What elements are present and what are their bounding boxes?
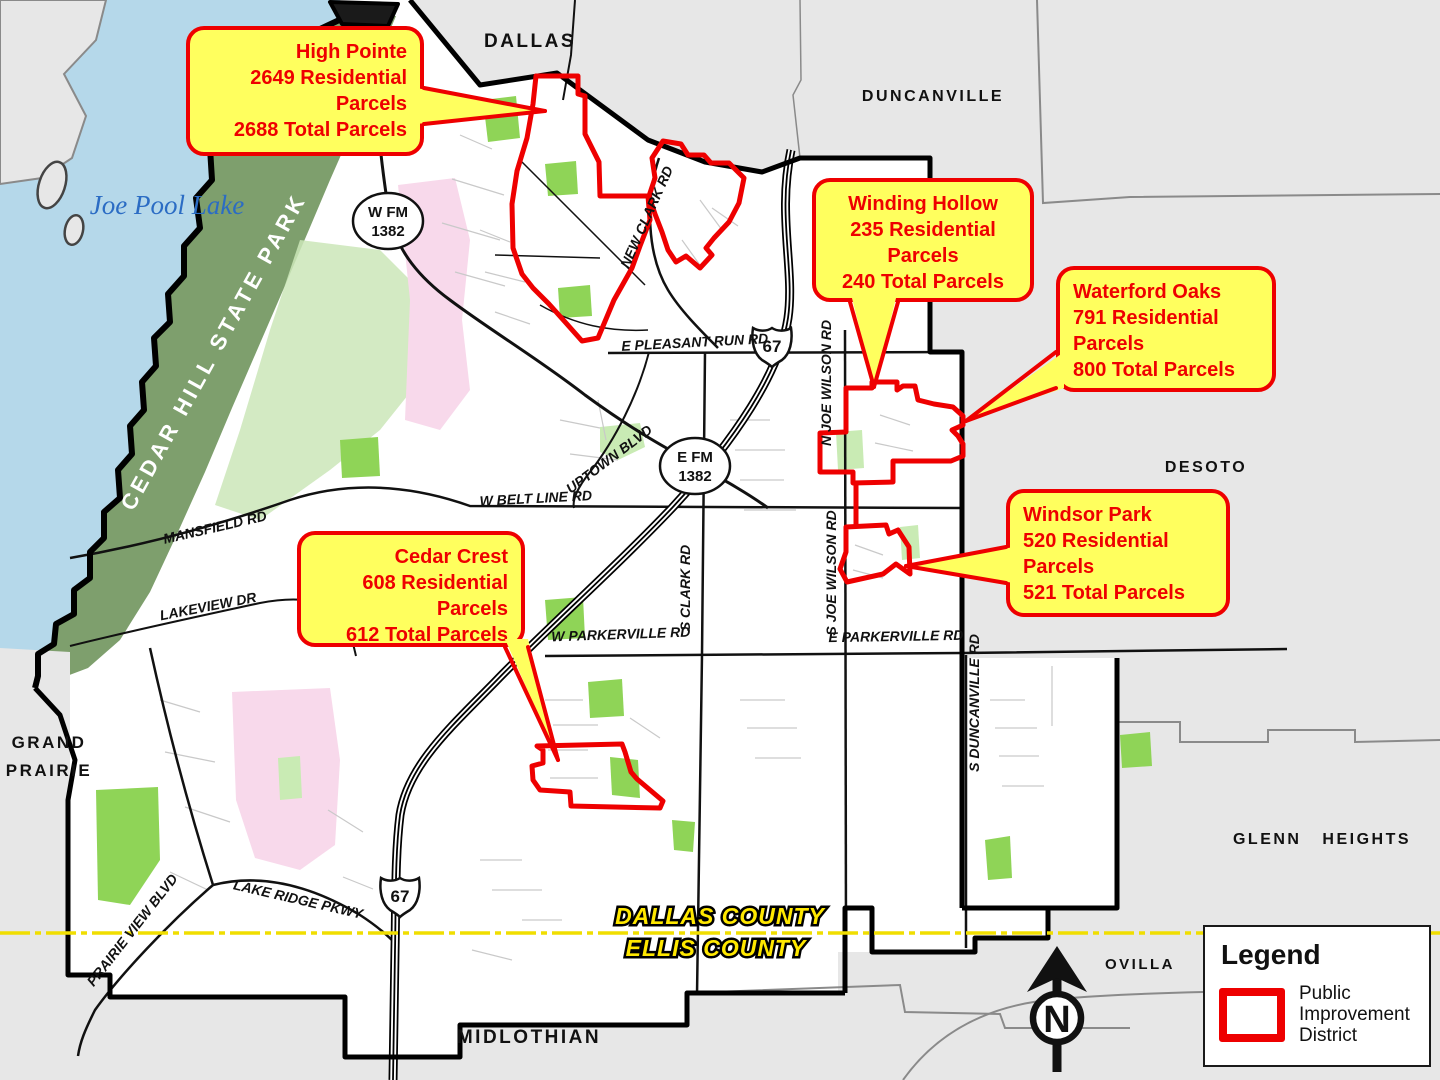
- residential-parcels: 608 Residential Parcels: [314, 570, 508, 622]
- wfm1382-label-bottom: 1382: [371, 223, 404, 240]
- road-label-n-joe-wilson: N JOE WILSON RD: [818, 320, 834, 446]
- road-label-e-parkerville: E PARKERVILLE RD: [828, 627, 963, 645]
- efm1382-label-top: E FM: [677, 449, 713, 466]
- wfm1382-shield: [353, 193, 423, 249]
- total-parcels: 521 Total Parcels: [1023, 580, 1213, 606]
- callout-winding-hollow: Winding Hollow 235 Residential Parcels 2…: [812, 178, 1034, 302]
- city-label-dallas: DALLAS: [484, 31, 576, 52]
- callout-title: Windsor Park: [1023, 502, 1213, 528]
- road-label-e-pleasant-run: E PLEASANT RUN RD: [621, 330, 769, 354]
- total-parcels: 2688 Total Parcels: [203, 117, 407, 143]
- county-label-dallas: DALLAS COUNTY: [615, 903, 826, 929]
- district-cedar-crest: [532, 744, 663, 808]
- legend-row: Public Improvement District: [1219, 983, 1429, 1046]
- legend-panel: Legend Public Improvement District: [1203, 925, 1431, 1067]
- road-label-lake-ridge: LAKE RIDGE PKWY: [232, 876, 366, 922]
- callout-stats: 520 Residential Parcels 521 Total Parcel…: [1023, 528, 1213, 606]
- callout-windsor-park: Windsor Park 520 Residential Parcels 521…: [1006, 489, 1230, 617]
- road-label-lakeview: LAKEVIEW DR: [158, 589, 258, 624]
- road-label-s-duncanville: S DUNCANVILLE RD: [966, 634, 982, 772]
- total-parcels: 612 Total Parcels: [314, 622, 508, 648]
- callout-title: Cedar Crest: [314, 544, 508, 570]
- efm1382-shield: [660, 438, 730, 494]
- us67-label: 67: [391, 887, 410, 906]
- callout-stats: 608 Residential Parcels 612 Total Parcel…: [314, 570, 508, 648]
- callout-stats: 235 Residential Parcels 240 Total Parcel…: [829, 217, 1017, 295]
- callout-stats: 791 Residential Parcels 800 Total Parcel…: [1073, 305, 1259, 383]
- total-parcels: 240 Total Parcels: [829, 269, 1017, 295]
- road-label-s-clark: S CLARK RD: [677, 545, 693, 631]
- residential-parcels: 520 Residential Parcels: [1023, 528, 1213, 580]
- road-label-s-joe-wilson: S JOE WILSON RD: [823, 510, 839, 635]
- county-label-ellis: ELLIS COUNTY: [626, 935, 808, 961]
- joe-pool-lake-label: Joe Pool Lake: [90, 190, 244, 220]
- wfm1382-label-top: W FM: [368, 204, 408, 221]
- pid-map-page: { "callouts": { "high_pointe": {"title":…: [0, 0, 1440, 1080]
- city-label-duncanville: DUNCANVILLE: [862, 88, 1004, 105]
- callout-cedar-crest: Cedar Crest 608 Residential Parcels 612 …: [297, 531, 525, 647]
- total-parcels: 800 Total Parcels: [1073, 357, 1259, 383]
- callout-title: High Pointe: [203, 39, 407, 65]
- callout-title: Winding Hollow: [829, 191, 1017, 217]
- city-label-ovilla: OVILLA: [1105, 956, 1175, 973]
- efm1382-label-bottom: 1382: [678, 468, 711, 485]
- city-label-midlothian: MIDLOTHIAN: [457, 1027, 601, 1048]
- city-label-grand-prairie-1: GRAND: [12, 733, 87, 752]
- callout-waterford-oaks: Waterford Oaks 791 Residential Parcels 8…: [1056, 266, 1276, 392]
- legend-title: Legend: [1221, 939, 1429, 971]
- road-label-new-clark: NEW CLARK RD: [617, 164, 676, 271]
- city-label-desoto: DESOTO: [1165, 459, 1247, 476]
- callout-high-pointe: High Pointe 2649 Residential Parcels 268…: [186, 26, 424, 156]
- north-arrow-n: N: [1043, 999, 1070, 1041]
- residential-parcels: 791 Residential Parcels: [1073, 305, 1259, 357]
- residential-parcels: 235 Residential Parcels: [829, 217, 1017, 269]
- callout-stats: 2649 Residential Parcels 2688 Total Parc…: [203, 65, 407, 143]
- legend-item-label: Public Improvement District: [1299, 983, 1417, 1046]
- residential-parcels: 2649 Residential Parcels: [203, 65, 407, 117]
- city-label-grand-prairie-2: PRAIRIE: [6, 761, 92, 780]
- pid-swatch-icon: [1219, 988, 1285, 1042]
- district-windsor-park: [840, 525, 910, 582]
- callout-title: Waterford Oaks: [1073, 279, 1259, 305]
- north-east-cities-area: [410, 0, 1440, 908]
- city-label-glenn-heights: GLENN HEIGHTS: [1233, 831, 1411, 848]
